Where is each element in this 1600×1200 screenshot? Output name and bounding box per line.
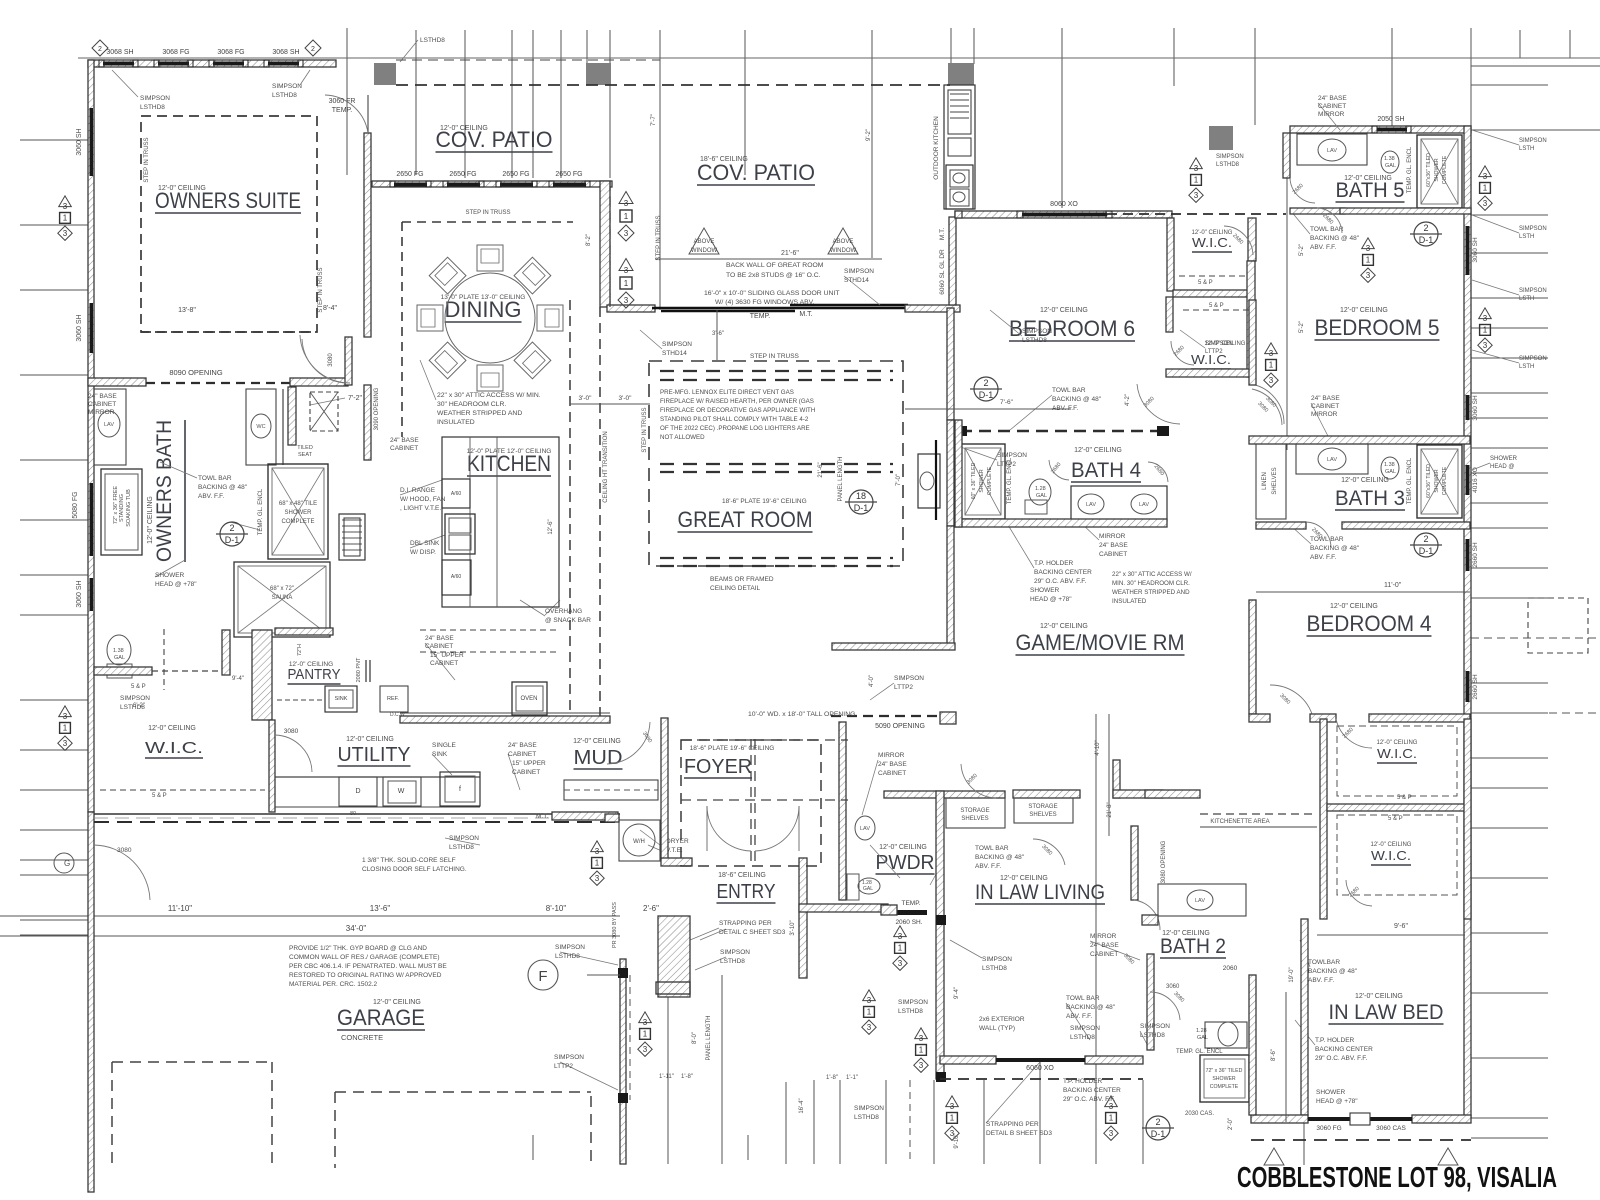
- svg-text:12'-0" CEILING: 12'-0" CEILING: [1040, 307, 1088, 314]
- svg-text:PANTRY: PANTRY: [288, 666, 341, 683]
- svg-text:CABINET: CABINET: [1318, 103, 1346, 110]
- svg-text:GAME/MOVIE RM: GAME/MOVIE RM: [1016, 630, 1185, 655]
- svg-text:TEMP.: TEMP.: [901, 900, 920, 907]
- svg-text:LAV: LAV: [1327, 457, 1337, 463]
- svg-text:LSTHD8: LSTHD8: [449, 844, 474, 851]
- svg-text:5 & P: 5 & P: [1198, 280, 1213, 286]
- svg-text:21'-6": 21'-6": [818, 462, 824, 477]
- svg-text:T.P. HOLDER: T.P. HOLDER: [1315, 1037, 1355, 1044]
- svg-text:LAV: LAV: [1139, 502, 1149, 508]
- svg-text:2650 FG: 2650 FG: [449, 171, 476, 178]
- svg-text:8'-4": 8'-4": [323, 305, 337, 312]
- svg-text:SIMPSON: SIMPSON: [272, 83, 302, 90]
- svg-text:LSTH: LSTH: [1519, 234, 1534, 240]
- svg-text:18'-6" CEILING: 18'-6" CEILING: [700, 156, 748, 163]
- svg-text:4'-2": 4'-2": [1125, 394, 1131, 406]
- svg-text:3: 3: [1366, 271, 1371, 280]
- svg-text:DETAIL B SHEET SD3: DETAIL B SHEET SD3: [986, 1130, 1052, 1137]
- svg-text:FIREPLACE W/ RAISED HEARTH, PE: FIREPLACE W/ RAISED HEARTH, PER OWNER (G…: [660, 398, 814, 405]
- svg-text:CABINET: CABINET: [512, 769, 540, 776]
- svg-text:SOAKING TUB: SOAKING TUB: [126, 489, 132, 527]
- svg-text:9'-4": 9'-4": [954, 987, 960, 999]
- svg-text:2x6 EXTERIOR: 2x6 EXTERIOR: [979, 1016, 1025, 1023]
- svg-text:SIMPSON: SIMPSON: [662, 341, 692, 348]
- svg-text:LAV: LAV: [1327, 148, 1337, 154]
- svg-text:TOWL BAR: TOWL BAR: [1052, 387, 1086, 394]
- svg-text:5 & P: 5 & P: [152, 793, 167, 799]
- svg-text:LAV: LAV: [860, 826, 870, 832]
- svg-text:SIMPSON: SIMPSON: [554, 1054, 584, 1061]
- svg-text:KITCHENETTE AREA: KITCHENETTE AREA: [1210, 819, 1269, 825]
- svg-text:CABINET: CABINET: [425, 643, 453, 650]
- svg-text:ABV. F.F.: ABV. F.F.: [198, 493, 224, 500]
- svg-text:3: 3: [1483, 341, 1488, 350]
- svg-text:21'-8": 21'-8": [1107, 802, 1113, 817]
- svg-text:SIMPSON: SIMPSON: [982, 956, 1012, 963]
- svg-text:COMPLETE: COMPLETE: [987, 466, 993, 495]
- svg-text:UTILITY: UTILITY: [338, 744, 411, 766]
- svg-text:GAL: GAL: [1385, 469, 1396, 475]
- svg-text:3: 3: [1109, 1129, 1114, 1138]
- svg-text:CABINET: CABINET: [878, 770, 906, 777]
- svg-text:TOWL BAR: TOWL BAR: [1310, 226, 1344, 233]
- svg-text:INSULATED: INSULATED: [437, 419, 475, 426]
- svg-text:BEAMS OR FRAMED: BEAMS OR FRAMED: [710, 576, 774, 583]
- svg-text:ABV. F.F.: ABV. F.F.: [1052, 405, 1078, 412]
- svg-text:SHOWER: SHOWER: [1434, 158, 1440, 182]
- svg-text:15" UPPER: 15" UPPER: [430, 652, 464, 659]
- svg-text:SHOWER: SHOWER: [155, 572, 185, 579]
- svg-text:3068 FG: 3068 FG: [162, 49, 189, 56]
- svg-text:STEP IN TRUSS: STEP IN TRUSS: [144, 137, 150, 182]
- svg-text:8090 OPENING: 8090 OPENING: [169, 368, 223, 377]
- svg-text:2060 SH.: 2060 SH.: [895, 919, 922, 926]
- svg-text:11'-10": 11'-10": [168, 904, 192, 913]
- svg-text:W.I.C.: W.I.C.: [1377, 746, 1417, 761]
- svg-text:2'-6": 2'-6": [643, 904, 659, 913]
- svg-text:3090 OPENING: 3090 OPENING: [374, 387, 380, 430]
- svg-text:GARAGE: GARAGE: [337, 1005, 425, 1030]
- svg-text:12'-0" CEILING: 12'-0" CEILING: [1000, 875, 1048, 882]
- svg-text:MIN. 30" HEADROOM CLR.: MIN. 30" HEADROOM CLR.: [1112, 580, 1190, 587]
- svg-text:2030 CAS.: 2030 CAS.: [1185, 1111, 1214, 1117]
- svg-text:STANDING PILOT SHALL COMPLY WI: STANDING PILOT SHALL COMPLY WITH TABLE 4…: [660, 416, 809, 423]
- svg-text:TO BE 2x8 STUDS @ 16" O.C.: TO BE 2x8 STUDS @ 16" O.C.: [726, 272, 821, 279]
- svg-text:16'-4": 16'-4": [799, 1098, 805, 1113]
- svg-text:CABINET: CABINET: [1311, 403, 1339, 410]
- svg-text:3: 3: [595, 847, 600, 856]
- svg-text:LSTHD8: LSTHD8: [982, 965, 1007, 972]
- svg-text:W/ DISP.: W/ DISP.: [410, 549, 436, 556]
- svg-text:IN LAW BED: IN LAW BED: [1329, 1001, 1444, 1024]
- svg-text:12'-0" CEILING: 12'-0" CEILING: [1040, 623, 1088, 630]
- svg-text:1: 1: [643, 1030, 648, 1039]
- svg-text:22" x 30" ATTIC ACCESS W/: 22" x 30" ATTIC ACCESS W/: [1112, 571, 1192, 578]
- svg-text:3060 SH: 3060 SH: [76, 128, 83, 155]
- svg-text:6'-2": 6'-2": [133, 703, 145, 709]
- svg-text:12'-0" CEILING: 12'-0" CEILING: [1341, 477, 1389, 484]
- svg-text:1.38: 1.38: [113, 648, 124, 654]
- svg-text:1: 1: [867, 1008, 872, 1017]
- svg-text:W.I.C.: W.I.C.: [145, 740, 203, 757]
- svg-text:CABINET: CABINET: [1090, 951, 1118, 958]
- svg-text:9'-2": 9'-2": [866, 129, 872, 141]
- svg-text:72" x 36" TILED: 72" x 36" TILED: [1206, 1068, 1243, 1074]
- svg-text:29" O.C. ABV. F.F.: 29" O.C. ABV. F.F.: [1315, 1055, 1367, 1062]
- svg-text:3: 3: [1109, 1102, 1114, 1111]
- svg-text:COMPLETE: COMPLETE: [281, 519, 314, 525]
- svg-text:HEAD @ +78": HEAD @ +78": [1316, 1098, 1358, 1105]
- svg-text:2660 SH: 2660 SH: [1472, 674, 1479, 700]
- svg-text:12'-0" CEILING: 12'-0" CEILING: [346, 736, 394, 743]
- svg-text:12'-0" CEILING: 12'-0" CEILING: [1371, 842, 1412, 848]
- svg-text:BACKING @ 48": BACKING @ 48": [975, 854, 1025, 861]
- svg-text:2650 FG: 2650 FG: [396, 171, 423, 178]
- svg-text:72"H: 72"H: [297, 644, 303, 656]
- svg-text:M.T.: M.T.: [799, 311, 812, 318]
- svg-text:3080 OPENING: 3080 OPENING: [1161, 840, 1167, 883]
- svg-text:18'-6" PLATE 19'-6" CEILING: 18'-6" PLATE 19'-6" CEILING: [722, 498, 807, 505]
- svg-text:1: 1: [595, 859, 600, 868]
- svg-text:COMPLETE: COMPLETE: [1442, 466, 1448, 495]
- svg-text:3'-0": 3'-0": [619, 395, 633, 402]
- svg-text:12'-0" CEILING: 12'-0" CEILING: [148, 725, 196, 732]
- svg-text:12'-6": 12'-6": [548, 519, 554, 534]
- svg-text:3: 3: [1483, 172, 1488, 181]
- svg-text:5'-2": 5'-2": [1299, 321, 1305, 333]
- svg-text:STRAPPING PER: STRAPPING PER: [719, 920, 772, 927]
- svg-text:12'-0" CEILING: 12'-0" CEILING: [373, 999, 421, 1006]
- svg-text:24" BASE: 24" BASE: [1311, 395, 1340, 402]
- svg-text:OWNERS BATH: OWNERS BATH: [153, 420, 176, 562]
- svg-text:ABOVE: ABOVE: [833, 239, 854, 245]
- svg-text:, LIGHT V.T.E.: , LIGHT V.T.E.: [400, 505, 441, 512]
- svg-text:2060: 2060: [1223, 965, 1238, 972]
- svg-text:TILED: TILED: [297, 445, 313, 451]
- svg-text:29" O.C. ABV. F.F.: 29" O.C. ABV. F.F.: [1063, 1096, 1115, 1103]
- svg-text:2650 FG: 2650 FG: [502, 171, 529, 178]
- svg-text:12'-0" CEILING: 12'-0" CEILING: [1377, 740, 1418, 746]
- svg-text:TOWL BAR: TOWL BAR: [1066, 995, 1100, 1002]
- svg-text:3: 3: [898, 932, 903, 941]
- svg-text:3'-10": 3'-10": [790, 920, 796, 935]
- svg-text:2'-0": 2'-0": [1228, 1118, 1234, 1130]
- svg-text:LSTHD8: LSTHD8: [854, 1114, 879, 1121]
- svg-text:3080: 3080: [117, 847, 132, 854]
- svg-text:GREAT ROOM: GREAT ROOM: [678, 507, 813, 532]
- svg-text:TEMP.: TEMP.: [750, 313, 771, 320]
- svg-text:LSTHD8: LSTHD8: [1022, 337, 1047, 344]
- svg-text:12'-0" CEILING: 12'-0" CEILING: [1192, 230, 1233, 236]
- svg-text:STRAPPING PER: STRAPPING PER: [986, 1121, 1039, 1128]
- svg-text:REF.: REF.: [387, 696, 399, 702]
- svg-text:STHD14: STHD14: [844, 277, 869, 284]
- svg-text:BATH 3: BATH 3: [1335, 487, 1405, 510]
- svg-text:3060 FG: 3060 FG: [1316, 1125, 1341, 1132]
- svg-text:1.28: 1.28: [1196, 1028, 1207, 1034]
- svg-text:3: 3: [1483, 199, 1488, 208]
- svg-text:13'-6": 13'-6": [370, 904, 391, 913]
- svg-text:24" BASE: 24" BASE: [1090, 942, 1119, 949]
- svg-text:MUD: MUD: [574, 747, 623, 769]
- svg-text:7'-6": 7'-6": [1000, 399, 1014, 406]
- svg-text:ABV. F.F.: ABV. F.F.: [1308, 977, 1334, 984]
- svg-text:2050 SH: 2050 SH: [1377, 116, 1404, 123]
- svg-text:WC: WC: [256, 424, 265, 430]
- svg-text:12'-0" CEILING: 12'-0" CEILING: [158, 185, 206, 192]
- svg-text:3: 3: [63, 229, 68, 238]
- svg-text:12'-0" CEILING: 12'-0" CEILING: [1330, 603, 1378, 610]
- svg-text:LAV: LAV: [1195, 898, 1205, 904]
- svg-text:W/ HOOD, FAN: W/ HOOD, FAN: [400, 496, 446, 503]
- svg-text:PANEL LENGTH: PANEL LENGTH: [706, 1015, 712, 1060]
- svg-text:SHOWER: SHOWER: [1316, 1089, 1346, 1096]
- svg-text:PRE-MFG. LENNOX ELITE DIRECT V: PRE-MFG. LENNOX ELITE DIRECT VENT GAS: [660, 389, 794, 396]
- svg-text:ABV. F.F.: ABV. F.F.: [1310, 554, 1336, 561]
- svg-text:68" x 72": 68" x 72": [270, 586, 294, 592]
- svg-text:2: 2: [1423, 534, 1428, 544]
- svg-text:STEP IN TRUSS: STEP IN TRUSS: [642, 407, 648, 452]
- svg-text:3: 3: [919, 1061, 924, 1070]
- svg-text:BEDROOM 5: BEDROOM 5: [1315, 315, 1440, 340]
- svg-text:STEP IN TRUSS: STEP IN TRUSS: [465, 210, 510, 216]
- svg-text:GAL: GAL: [863, 886, 873, 892]
- svg-text:COBBLESTONE LOT 98, VISALIA: COBBLESTONE LOT 98, VISALIA: [1237, 1162, 1557, 1194]
- svg-text:WEATHER STRIPPED AND: WEATHER STRIPPED AND: [1112, 589, 1190, 596]
- svg-text:3: 3: [624, 229, 629, 238]
- svg-text:LAV: LAV: [1086, 502, 1096, 508]
- svg-text:CONCRETE: CONCRETE: [341, 1033, 383, 1042]
- svg-text:D: D: [355, 788, 360, 795]
- svg-text:COMPLETE: COMPLETE: [1442, 155, 1448, 184]
- svg-text:STORAGE: STORAGE: [1028, 804, 1057, 810]
- svg-text:TOWLBAR: TOWLBAR: [1308, 959, 1340, 966]
- svg-text:PR 3080 BY PASS: PR 3080 BY PASS: [612, 902, 618, 948]
- svg-text:SIMPSON: SIMPSON: [1140, 1023, 1170, 1030]
- svg-text:3060 SH: 3060 SH: [1472, 395, 1479, 421]
- svg-text:TOWL BAR: TOWL BAR: [198, 475, 232, 482]
- svg-text:24" BASE: 24" BASE: [390, 437, 419, 444]
- svg-text:STEP IN TRUSS: STEP IN TRUSS: [318, 267, 324, 312]
- svg-text:SINK: SINK: [335, 696, 348, 702]
- svg-text:80: 80: [350, 811, 356, 817]
- svg-text:ABOVE: ABOVE: [694, 239, 715, 245]
- svg-text:24" BASE: 24" BASE: [1099, 542, 1128, 549]
- svg-text:3: 3: [643, 1045, 648, 1054]
- svg-text:CEILING HT TRANSITION: CEILING HT TRANSITION: [603, 431, 609, 502]
- svg-text:SIMPSON: SIMPSON: [1070, 1025, 1100, 1032]
- svg-text:SIMPSON: SIMPSON: [844, 268, 874, 275]
- svg-text:CABINET: CABINET: [390, 445, 418, 452]
- svg-text:1: 1: [1109, 1114, 1114, 1123]
- svg-text:12'-0" CEILING: 12'-0" CEILING: [1340, 307, 1388, 314]
- svg-text:COMPLETE: COMPLETE: [1210, 1084, 1239, 1090]
- svg-text:HEAD @ +78": HEAD @ +78": [155, 581, 197, 588]
- svg-text:18: 18: [856, 491, 866, 501]
- svg-text:BEDROOM 4: BEDROOM 4: [1307, 611, 1432, 636]
- svg-text:3: 3: [1194, 164, 1199, 173]
- svg-text:LSTH: LSTH: [1519, 146, 1534, 152]
- svg-text:ABV. F.F.: ABV. F.F.: [975, 863, 1001, 870]
- svg-text:12'-0" CEILING: 12'-0" CEILING: [1162, 930, 1210, 937]
- svg-text:3080: 3080: [284, 728, 299, 735]
- svg-text:OVEN: OVEN: [520, 696, 537, 702]
- svg-text:TEMP. GL. ENCL: TEMP. GL. ENCL: [1407, 457, 1413, 504]
- svg-text:3: 3: [1483, 314, 1488, 323]
- svg-text:3: 3: [919, 1034, 924, 1043]
- svg-text:3: 3: [624, 199, 629, 208]
- svg-text:SIMPSON: SIMPSON: [555, 944, 585, 951]
- svg-text:MIRROR: MIRROR: [1099, 533, 1126, 540]
- svg-text:3060 CAS: 3060 CAS: [1376, 1125, 1406, 1132]
- svg-text:BATH 2: BATH 2: [1160, 935, 1226, 958]
- svg-text:60"x36" TILED: 60"x36" TILED: [1426, 464, 1432, 498]
- svg-text:2650 FG: 2650 FG: [555, 171, 582, 178]
- svg-text:3060 FR: 3060 FR: [329, 98, 356, 105]
- svg-text:3'-0": 3'-0": [579, 395, 593, 402]
- svg-text:FOYER: FOYER: [684, 756, 752, 778]
- svg-text:SIMPSON: SIMPSON: [140, 95, 170, 102]
- svg-text:5090 OPENING: 5090 OPENING: [875, 723, 925, 730]
- svg-text:BACKING CENTER: BACKING CENTER: [1063, 1087, 1121, 1094]
- svg-text:MIRROR: MIRROR: [1318, 111, 1345, 118]
- svg-text:5 & P: 5 & P: [1388, 816, 1403, 822]
- svg-text:4016 XO: 4016 XO: [1472, 467, 1479, 493]
- svg-text:3: 3: [867, 996, 872, 1005]
- svg-text:COV. PATIO: COV. PATIO: [697, 160, 815, 185]
- svg-text:1: 1: [63, 214, 68, 223]
- svg-text:1: 1: [63, 724, 68, 733]
- svg-text:BATH 5: BATH 5: [1336, 179, 1405, 202]
- svg-text:TOWL BAR: TOWL BAR: [975, 845, 1009, 852]
- svg-text:SIMPSON: SIMPSON: [720, 949, 750, 956]
- svg-text:G: G: [64, 859, 70, 868]
- svg-text:M.T.: M.T.: [536, 813, 548, 820]
- svg-text:1 3/8" THK. SOLID-CORE SELF: 1 3/8" THK. SOLID-CORE SELF: [362, 857, 456, 864]
- svg-text:D-1: D-1: [225, 535, 240, 545]
- svg-text:W.I.C.: W.I.C.: [1192, 235, 1232, 250]
- svg-text:3: 3: [1194, 191, 1199, 200]
- svg-text:TEMP. GL. ENCL: TEMP. GL. ENCL: [1007, 457, 1013, 504]
- svg-text:1'-8": 1'-8": [826, 1075, 838, 1081]
- svg-text:ABV. F.F.: ABV. F.F.: [1310, 244, 1336, 251]
- svg-text:1: 1: [950, 1114, 955, 1123]
- svg-text:3060 SH: 3060 SH: [76, 580, 83, 607]
- svg-text:LTTP2: LTTP2: [894, 684, 913, 691]
- svg-text:PER CBC 406.1.4. IF PENATRATED: PER CBC 406.1.4. IF PENATRATED. WALL MUS…: [289, 963, 447, 970]
- svg-text:SHOWER: SHOWER: [285, 510, 313, 516]
- svg-text:7'-0": 7'-0": [896, 474, 902, 486]
- svg-text:LSTHD8: LSTHD8: [1216, 162, 1240, 168]
- svg-text:D.I. RANGE: D.I. RANGE: [400, 487, 436, 494]
- svg-text:SIMPSON: SIMPSON: [1519, 356, 1547, 362]
- svg-text:8'-6": 8'-6": [1271, 1049, 1277, 1061]
- svg-text:2: 2: [98, 46, 102, 53]
- svg-text:SHOWER: SHOWER: [1434, 469, 1440, 493]
- svg-text:GAL: GAL: [1385, 163, 1396, 169]
- svg-text:29" O.C. ABV. F.F.: 29" O.C. ABV. F.F.: [1034, 578, 1086, 585]
- svg-text:SEAT: SEAT: [298, 452, 313, 458]
- svg-text:SIMPSON: SIMPSON: [898, 999, 928, 1006]
- svg-text:D-1: D-1: [1419, 235, 1434, 245]
- svg-text:GAL: GAL: [1197, 1035, 1208, 1041]
- svg-text:1: 1: [1483, 184, 1488, 193]
- svg-text:W.I.C.: W.I.C.: [1371, 848, 1411, 863]
- svg-text:BACKING CENTER: BACKING CENTER: [1034, 569, 1092, 576]
- svg-text:HEAD @ +78": HEAD @ +78": [1030, 596, 1072, 603]
- svg-text:1.38: 1.38: [1384, 462, 1395, 468]
- svg-text:24" BASE: 24" BASE: [508, 742, 537, 749]
- svg-text:D-1: D-1: [1151, 1129, 1166, 1139]
- svg-text:1.38: 1.38: [1384, 156, 1395, 162]
- svg-text:3060 SH: 3060 SH: [76, 314, 83, 341]
- svg-text:TEMP. GL. ENCL: TEMP. GL. ENCL: [1407, 146, 1413, 193]
- svg-text:BACKING @ 48": BACKING @ 48": [1066, 1004, 1116, 1011]
- svg-text:10'-0" WD. x 18'-0" TALL OPENI: 10'-0" WD. x 18'-0" TALL OPENING: [748, 711, 855, 718]
- svg-text:7'-2": 7'-2": [348, 395, 362, 402]
- svg-text:24" BASE: 24" BASE: [878, 761, 907, 768]
- svg-text:DETAIL C SHEET SD3: DETAIL C SHEET SD3: [719, 929, 786, 936]
- svg-text:LSTHD8: LSTHD8: [720, 958, 745, 965]
- svg-text:WINDOW: WINDOW: [691, 248, 718, 254]
- svg-text:BACKING @ 48": BACKING @ 48": [1310, 235, 1360, 242]
- svg-text:9'-6": 9'-6": [1394, 923, 1408, 930]
- svg-text:SAUNA: SAUNA: [272, 595, 293, 601]
- svg-text:3: 3: [1366, 244, 1371, 253]
- svg-text:PROVIDE 1/2" THK. GYP BOARD @: PROVIDE 1/2" THK. GYP BOARD @ CLG AND: [289, 945, 427, 952]
- svg-text:34'-0": 34'-0": [346, 924, 367, 933]
- svg-text:5 & P: 5 & P: [1397, 795, 1412, 801]
- svg-text:12'-0" CEILING: 12'-0" CEILING: [147, 496, 154, 544]
- svg-text:SIMPSON: SIMPSON: [1519, 288, 1547, 294]
- svg-text:8'-10": 8'-10": [546, 904, 567, 913]
- svg-text:A/60: A/60: [451, 574, 462, 580]
- svg-text:19'-0": 19'-0": [1289, 967, 1295, 982]
- svg-text:WEATHER STRIPPED AND: WEATHER STRIPPED AND: [437, 410, 522, 417]
- svg-text:SIMPSON: SIMPSON: [1519, 138, 1547, 144]
- svg-text:M.T.: M.T.: [939, 228, 946, 240]
- svg-text:T.P. HOLDER: T.P. HOLDER: [1034, 560, 1074, 567]
- svg-text:LINEN: LINEN: [1262, 472, 1268, 490]
- svg-text:MIRROR: MIRROR: [1090, 933, 1117, 940]
- svg-text:OF THE 2022 CEC) .PROPANE LOG: OF THE 2022 CEC) .PROPANE LOG LIGHTERS A…: [660, 425, 810, 432]
- svg-text:SINGLE: SINGLE: [432, 742, 457, 749]
- svg-text:18'-6" PLATE 19'-6" CEILING: 18'-6" PLATE 19'-6" CEILING: [690, 745, 775, 752]
- svg-text:13'-8": 13'-8": [178, 307, 196, 314]
- svg-text:LSTHD8: LSTHD8: [1140, 1032, 1165, 1039]
- svg-text:LSTHD8: LSTHD8: [140, 104, 165, 111]
- svg-text:1: 1: [1366, 256, 1371, 265]
- svg-text:PWDR: PWDR: [876, 852, 935, 874]
- svg-text:24" BASE: 24" BASE: [1318, 95, 1347, 102]
- svg-text:2: 2: [1155, 1117, 1160, 1127]
- svg-text:1: 1: [1194, 176, 1199, 185]
- svg-text:TEMP.: TEMP.: [332, 107, 353, 114]
- svg-text:3068 SH: 3068 SH: [272, 49, 299, 56]
- svg-text:6060 XO: 6060 XO: [1026, 1065, 1054, 1072]
- svg-text:4'-0": 4'-0": [869, 675, 875, 687]
- svg-text:3: 3: [867, 1023, 872, 1032]
- svg-text:12'-0" CEILING: 12'-0" CEILING: [289, 661, 333, 668]
- svg-text:CABINET: CABINET: [88, 401, 116, 408]
- svg-text:COMMON WALL OF RES./ GARAGE (C: COMMON WALL OF RES./ GARAGE (COMPLETE): [289, 954, 439, 961]
- svg-text:INSULATED: INSULATED: [1112, 598, 1147, 605]
- svg-text:5'-2": 5'-2": [1299, 244, 1305, 256]
- svg-text:3: 3: [595, 874, 600, 883]
- svg-text:3: 3: [950, 1102, 955, 1111]
- svg-text:RESTORED TO ORIGINAL RATING W/: RESTORED TO ORIGINAL RATING W/ APPROVED: [289, 972, 442, 979]
- svg-text:LSTH: LSTH: [1519, 364, 1534, 370]
